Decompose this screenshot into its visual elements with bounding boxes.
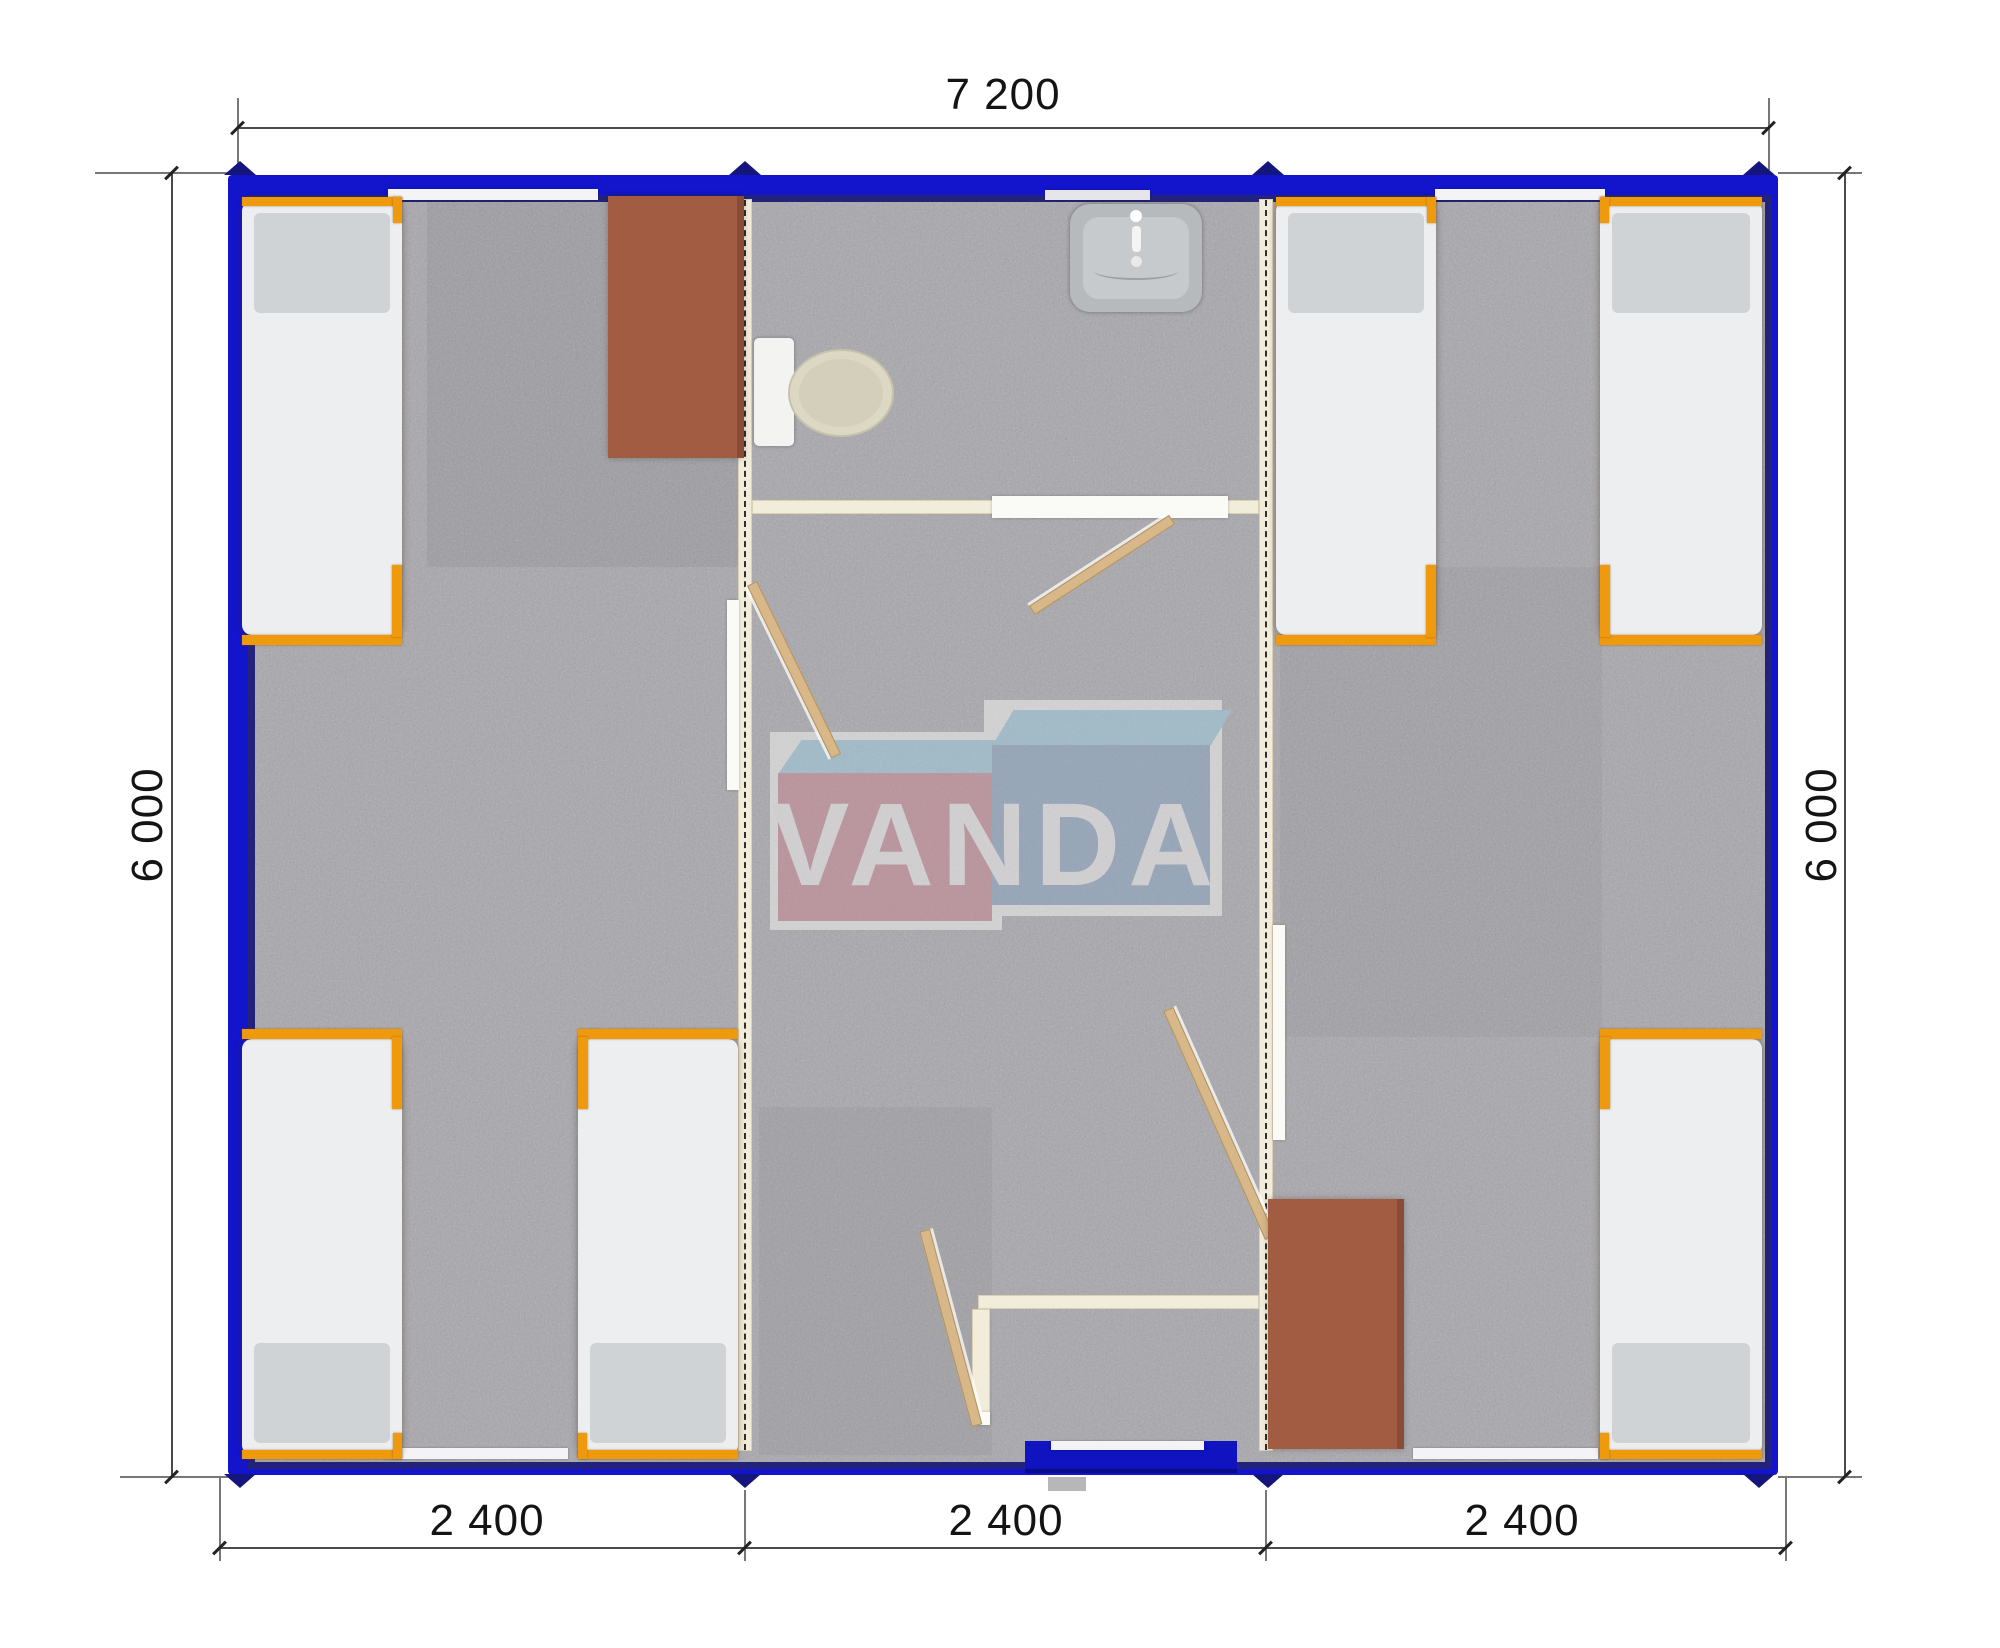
- entrance-threshold: [1051, 1441, 1204, 1450]
- dimension-label-top: 7 200: [945, 70, 1060, 120]
- vestibule-wall-horizontal: [978, 1295, 1259, 1309]
- faucet-spout: [1132, 226, 1141, 252]
- window-top-right-room: [1435, 189, 1605, 200]
- bed-frame-stub: [1427, 197, 1436, 223]
- bed-frame-stub: [1600, 1433, 1609, 1459]
- bed: [242, 1029, 402, 1459]
- bed-frame-bar: [242, 635, 402, 645]
- door-leaf-right-room: [1273, 925, 1285, 1140]
- door-leaf-bathroom: [992, 496, 1228, 518]
- bed-pillow: [1612, 1343, 1750, 1443]
- bed-frame-stub: [393, 197, 402, 223]
- bed-frame-bar: [1276, 635, 1436, 645]
- door-leaf-left-room: [727, 600, 739, 790]
- dimension-line-left: [171, 173, 173, 1477]
- entrance-step: [1048, 1477, 1086, 1491]
- bed-frame-bar: [242, 197, 402, 206]
- bed-frame-bar: [1600, 1450, 1762, 1459]
- extension-line: [1768, 98, 1770, 170]
- carpet-tile-patch: [759, 1107, 992, 1455]
- bed-frame-stub: [578, 1037, 588, 1109]
- module-joint-marker: [224, 1474, 256, 1488]
- logo-box-top-left: [778, 740, 1014, 774]
- faucet-icon: [1130, 210, 1142, 222]
- wall-centerline: [744, 200, 746, 1450]
- bed-frame-bar: [1600, 197, 1762, 206]
- bed: [578, 1029, 738, 1459]
- logo-text: VANDA: [770, 786, 1222, 904]
- bed-frame-stub: [1600, 1037, 1610, 1109]
- dimension-label-bottom-2: 2 400: [948, 1496, 1063, 1546]
- bed-pillow: [590, 1343, 726, 1443]
- extension-line: [1778, 172, 1862, 174]
- dimension-line-right: [1844, 173, 1846, 1477]
- bed-frame-stub: [392, 1037, 402, 1109]
- bed-pillow: [254, 213, 390, 313]
- bed-frame-bar: [578, 1029, 738, 1039]
- bed-frame-stub: [393, 1433, 402, 1459]
- extension-line: [744, 1490, 746, 1561]
- window-bathroom: [1045, 190, 1150, 200]
- extension-line: [1778, 1476, 1862, 1478]
- bed: [242, 197, 402, 645]
- bed-frame-stub: [1600, 197, 1609, 223]
- module-joint-marker: [224, 161, 256, 175]
- extension-line: [237, 98, 239, 170]
- bed-frame-bar: [1600, 1029, 1762, 1039]
- floor-plan-canvas: 7 200 2 400 2 400 2 400 6 000 6 000: [0, 0, 2000, 1648]
- vanda-watermark-logo: VANDA: [770, 700, 1222, 932]
- bed: [1276, 197, 1436, 645]
- bed-frame-stub: [392, 565, 402, 637]
- module-joint-marker: [1252, 161, 1284, 175]
- module-joint-marker: [729, 161, 761, 175]
- logo-box-top-right: [992, 710, 1232, 746]
- sink-overflow-line: [1094, 262, 1178, 280]
- extension-line: [1265, 1490, 1267, 1561]
- toilet-seat: [799, 359, 883, 427]
- bed-frame-stub: [1426, 565, 1436, 637]
- extension-line: [95, 172, 228, 174]
- bed-frame-stub: [1600, 565, 1610, 637]
- bed: [1600, 1029, 1762, 1459]
- bed-pillow: [1288, 213, 1424, 313]
- dimension-label-bottom-1: 2 400: [429, 1496, 544, 1546]
- table: [1268, 1199, 1404, 1449]
- bed-frame-bar: [242, 1450, 402, 1459]
- bed-frame-bar: [1600, 635, 1762, 645]
- table: [608, 196, 744, 458]
- bed-frame-stub: [578, 1433, 587, 1459]
- dimension-label-bottom-3: 2 400: [1464, 1496, 1579, 1546]
- window-bottom-right-room: [1413, 1448, 1598, 1459]
- bed-frame-bar: [242, 1029, 402, 1039]
- window-bottom-left-room: [383, 1448, 568, 1459]
- module-joint-marker: [1743, 1474, 1775, 1488]
- window-top-left-room: [388, 189, 598, 200]
- module-joint-marker: [1252, 1474, 1284, 1488]
- wall-centerline: [1265, 200, 1267, 1450]
- dimension-line-top: [237, 127, 1769, 129]
- dimension-label-left: 6 000: [123, 767, 173, 882]
- dimension-line-bottom: [219, 1547, 1787, 1549]
- module-joint-marker: [1743, 161, 1775, 175]
- bed-pillow: [254, 1343, 390, 1443]
- sink-icon: [1070, 204, 1202, 312]
- bed-frame-bar: [578, 1450, 738, 1459]
- bed-pillow: [1612, 213, 1750, 313]
- toilet-bowl: [788, 349, 894, 437]
- dimension-label-right: 6 000: [1797, 767, 1847, 882]
- module-joint-marker: [729, 1474, 761, 1488]
- bed: [1600, 197, 1762, 645]
- bed-frame-bar: [1276, 197, 1436, 206]
